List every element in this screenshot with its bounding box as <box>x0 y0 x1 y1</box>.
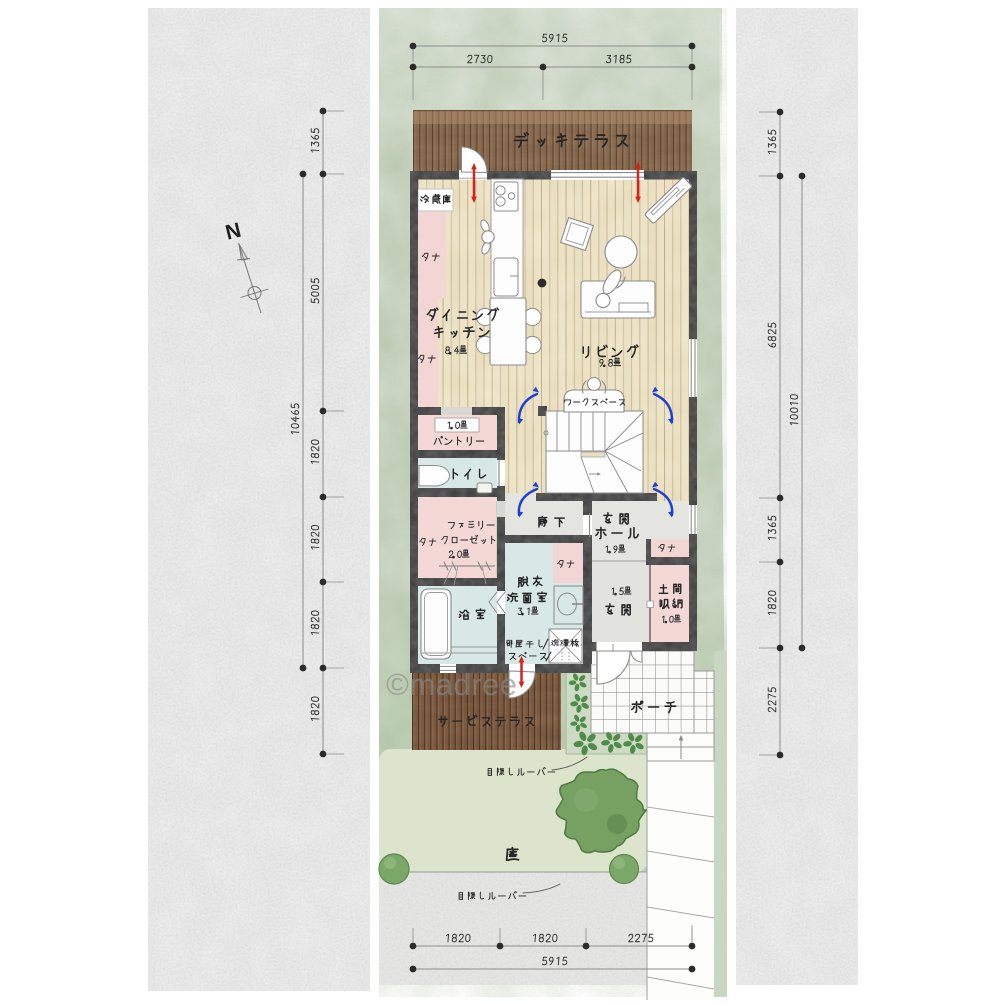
svg-text:©madree: ©madree <box>386 667 517 702</box>
